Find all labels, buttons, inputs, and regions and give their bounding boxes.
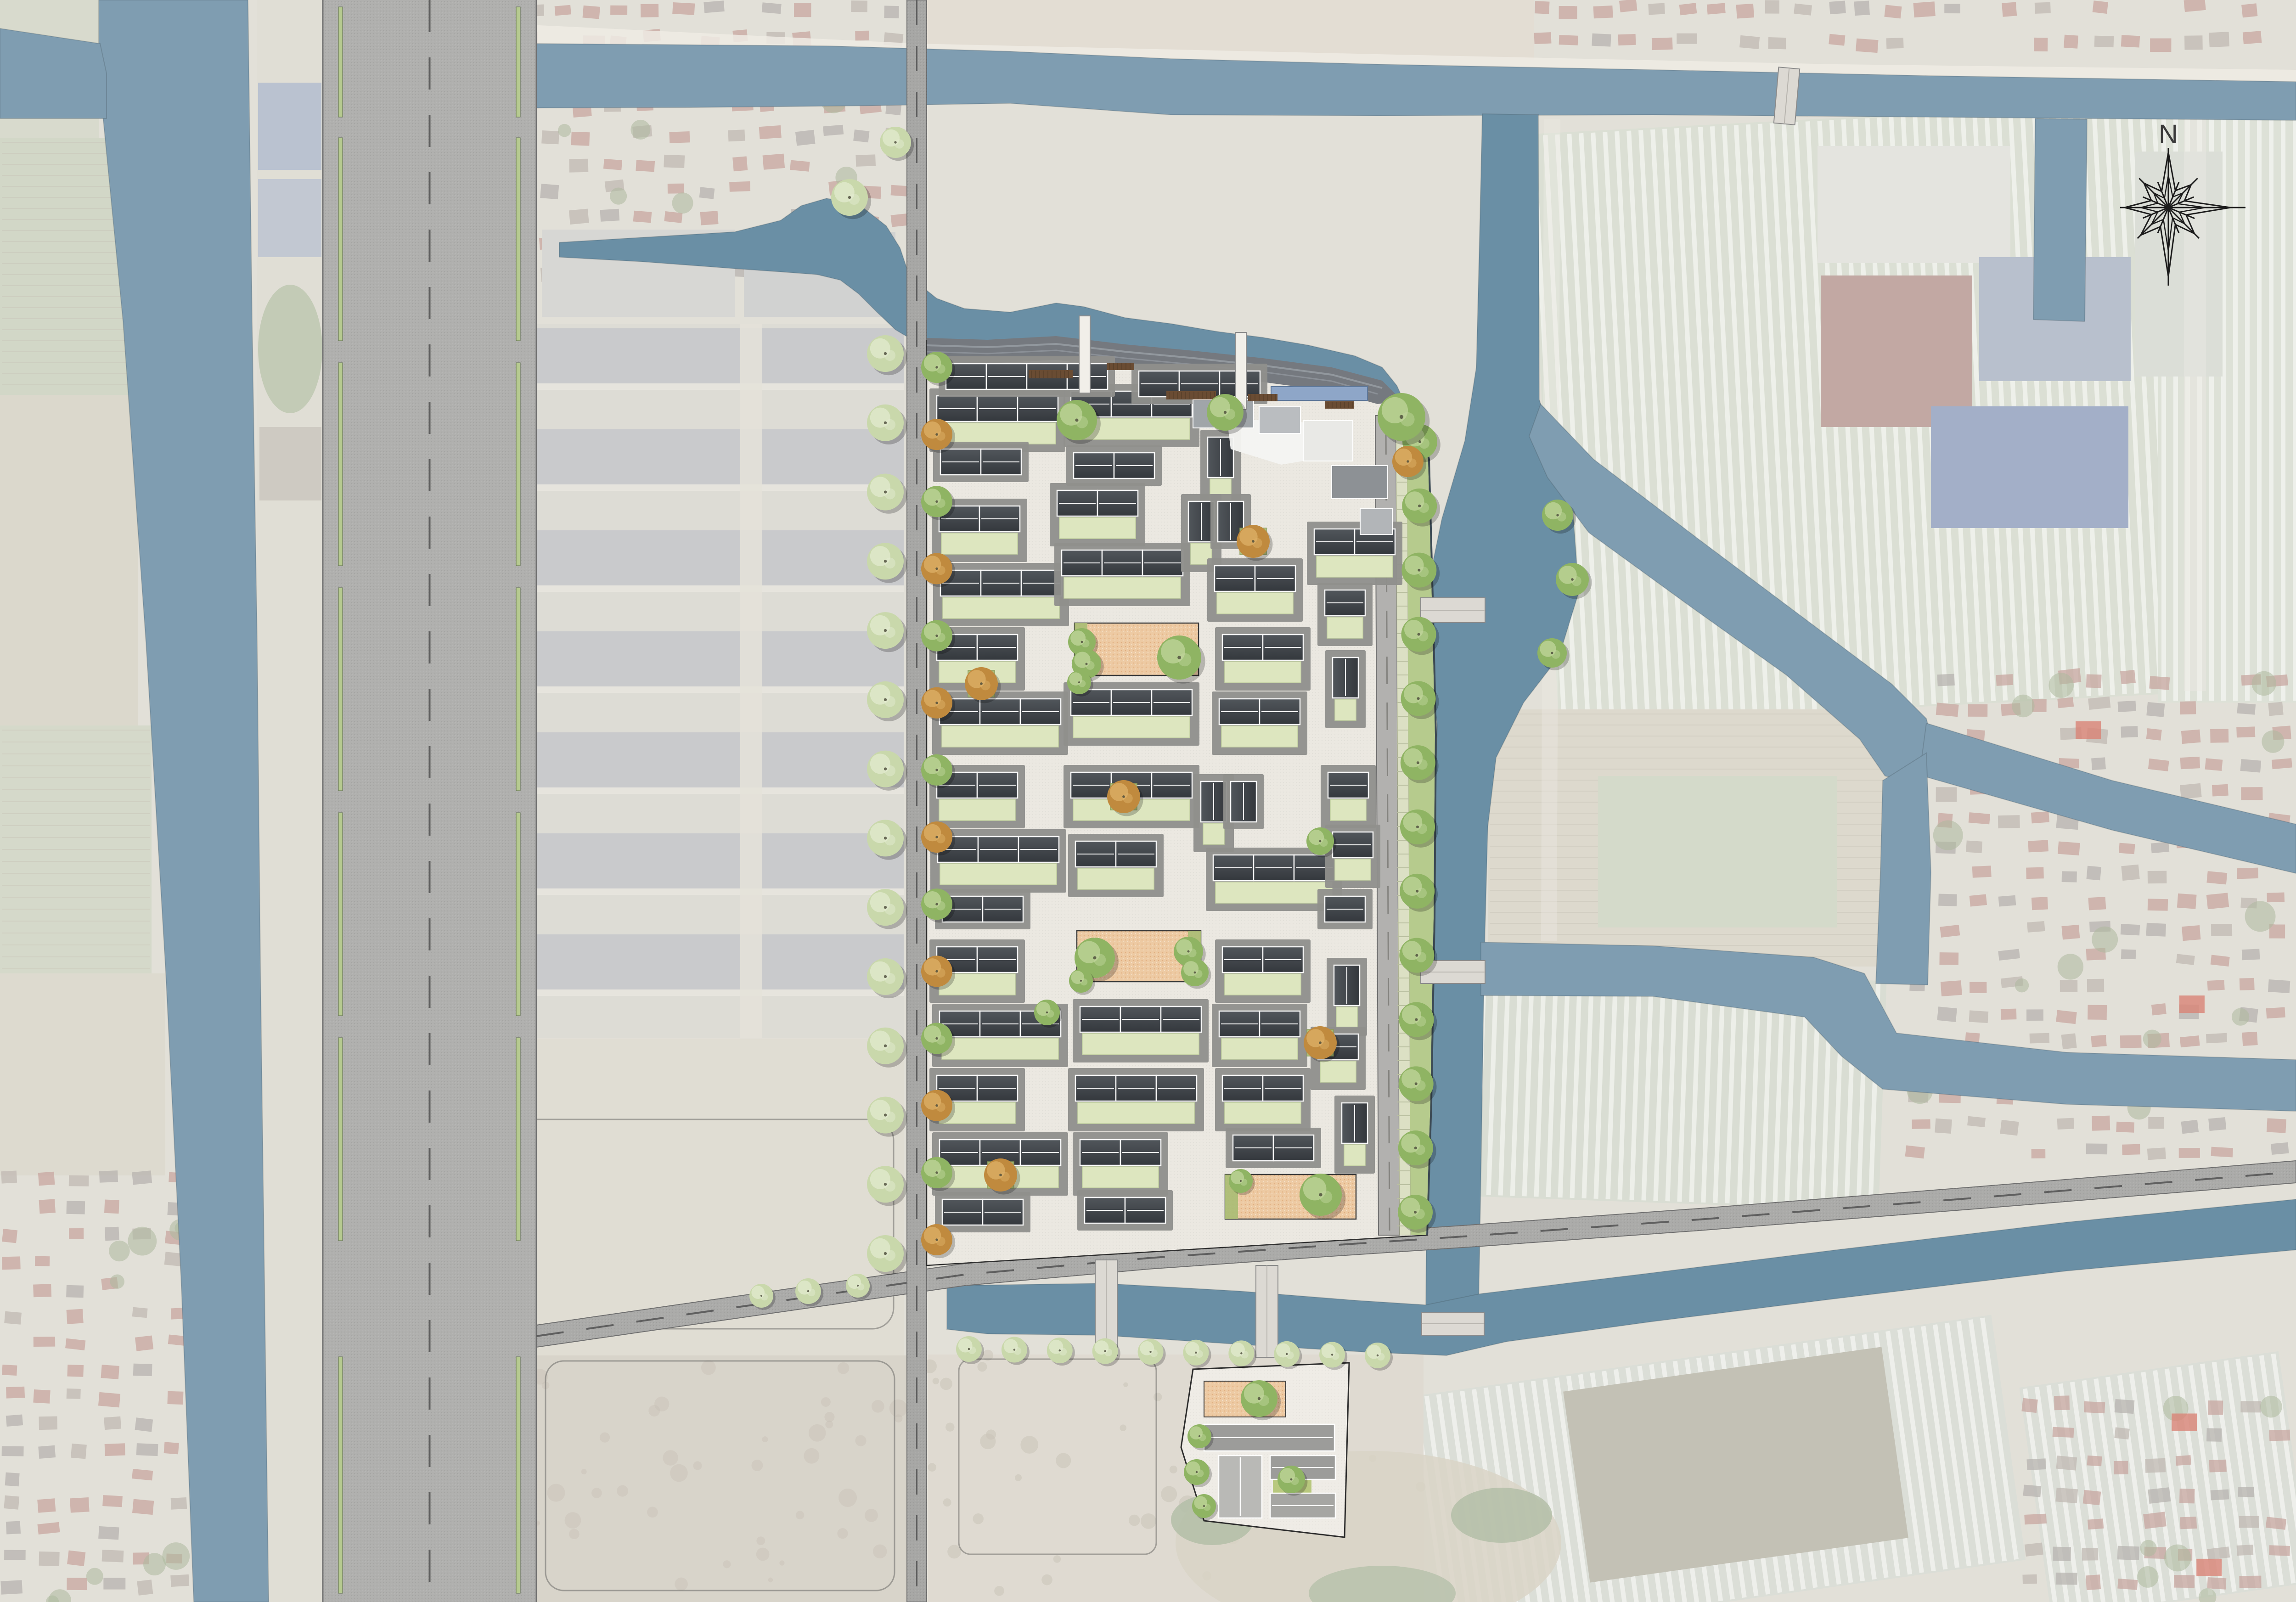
canal-top-right-short-canal [2033, 118, 2087, 321]
road-verge-stripe [338, 588, 343, 791]
road-verge-stripe [516, 138, 520, 341]
garden-yard [1216, 882, 1332, 903]
building-cluster [1212, 1004, 1307, 1067]
blue-roof-building [1271, 387, 1367, 400]
garden-yard [942, 726, 1058, 747]
flat-roof-building [1360, 509, 1392, 534]
building-cluster [1327, 958, 1367, 1036]
road-verge-stripe [338, 7, 343, 117]
garden-yard [1078, 1102, 1194, 1124]
garden-yard [1327, 617, 1363, 638]
garden-yard [1225, 662, 1301, 683]
garden-yard [1217, 593, 1293, 614]
garden-yard [943, 597, 1059, 618]
road-verge-stripe [516, 363, 520, 566]
timber-boardwalk [1029, 370, 1073, 378]
building-cluster [1066, 445, 1162, 486]
building-cluster [935, 1192, 1030, 1232]
timber-boardwalk [1325, 401, 1354, 409]
bridge [1421, 598, 1485, 623]
building-cluster [1215, 939, 1311, 1003]
road-verge-stripe [338, 138, 343, 341]
building-cluster [1073, 999, 1209, 1062]
building-cluster [1317, 583, 1373, 646]
building-cluster [1317, 889, 1373, 929]
garden-yard [1320, 1061, 1356, 1082]
road-verge-stripe [516, 813, 520, 1016]
building-cluster [1325, 650, 1366, 728]
building-cluster [1054, 543, 1190, 606]
garden-yard [1344, 1145, 1365, 1166]
parcel-building [1219, 1456, 1262, 1518]
timber-boardwalk [1248, 394, 1277, 401]
garden-yard [1335, 699, 1356, 720]
parcel-building [1204, 1424, 1334, 1451]
garden-yard [1317, 556, 1393, 577]
building-cluster [1325, 825, 1380, 888]
garden-yard [1335, 859, 1371, 880]
road-verge-stripe [516, 1038, 520, 1241]
building-cluster [1212, 691, 1307, 755]
pier [1079, 316, 1090, 393]
garden-yard [1225, 1102, 1301, 1124]
garden-yard [1203, 823, 1224, 844]
building-cluster [1215, 627, 1311, 691]
canal-south-link-canal [1876, 753, 1931, 985]
building-cluster [1215, 1068, 1311, 1131]
garden-yard [941, 533, 1018, 554]
building-cluster [1068, 834, 1164, 897]
garden-yard [1064, 577, 1181, 598]
building-cluster [1207, 558, 1303, 622]
garden-yard [1330, 799, 1366, 821]
garden-yard [1059, 517, 1136, 539]
garden-yard [1221, 726, 1298, 747]
pier [1235, 332, 1246, 410]
road-verge-stripe [338, 813, 343, 1016]
flat-roof-building [1303, 421, 1353, 461]
masterplan-map: N [0, 0, 2296, 1602]
garden-yard [939, 423, 1056, 444]
flat-roof-building [1259, 407, 1300, 433]
flat-roof-building [1332, 466, 1388, 499]
timber-boardwalk [1166, 391, 1216, 399]
building-cluster [1077, 1190, 1173, 1231]
bridge [1422, 1312, 1484, 1335]
site-plan-canvas: N [0, 0, 2296, 1602]
timber-boardwalk [1107, 363, 1134, 370]
garden-yard [1078, 868, 1154, 889]
garden-yard [939, 799, 1015, 821]
road-verge-stripe [516, 7, 520, 117]
road-verge-stripe [338, 1357, 343, 1593]
road-verge-stripe [516, 1357, 520, 1593]
garden-yard [1073, 717, 1190, 738]
road-verge-stripe [516, 588, 520, 791]
building-cluster [1223, 774, 1264, 829]
road-verge-stripe [338, 1038, 343, 1241]
road-verge-stripe [338, 363, 343, 566]
building-cluster [1050, 483, 1145, 546]
north-label: N [2159, 119, 2178, 149]
garden-yard [1336, 1007, 1357, 1028]
garden-yard [942, 1038, 1058, 1059]
parcel-building [1270, 1493, 1335, 1518]
garden-yard [1225, 974, 1301, 995]
garden-yard [1221, 1038, 1298, 1059]
building-cluster [1073, 1132, 1168, 1196]
garden-yard [1082, 1167, 1159, 1188]
building-cluster [1226, 1128, 1321, 1168]
bridge [1256, 1265, 1278, 1357]
canal-top-left-branch [0, 28, 107, 118]
garden-yard [1082, 1034, 1199, 1055]
building-cluster [1068, 1068, 1204, 1131]
building-cluster [1334, 1096, 1375, 1174]
garden-yard [940, 864, 1057, 885]
bridge [1774, 67, 1800, 125]
building-cluster [1321, 765, 1376, 828]
